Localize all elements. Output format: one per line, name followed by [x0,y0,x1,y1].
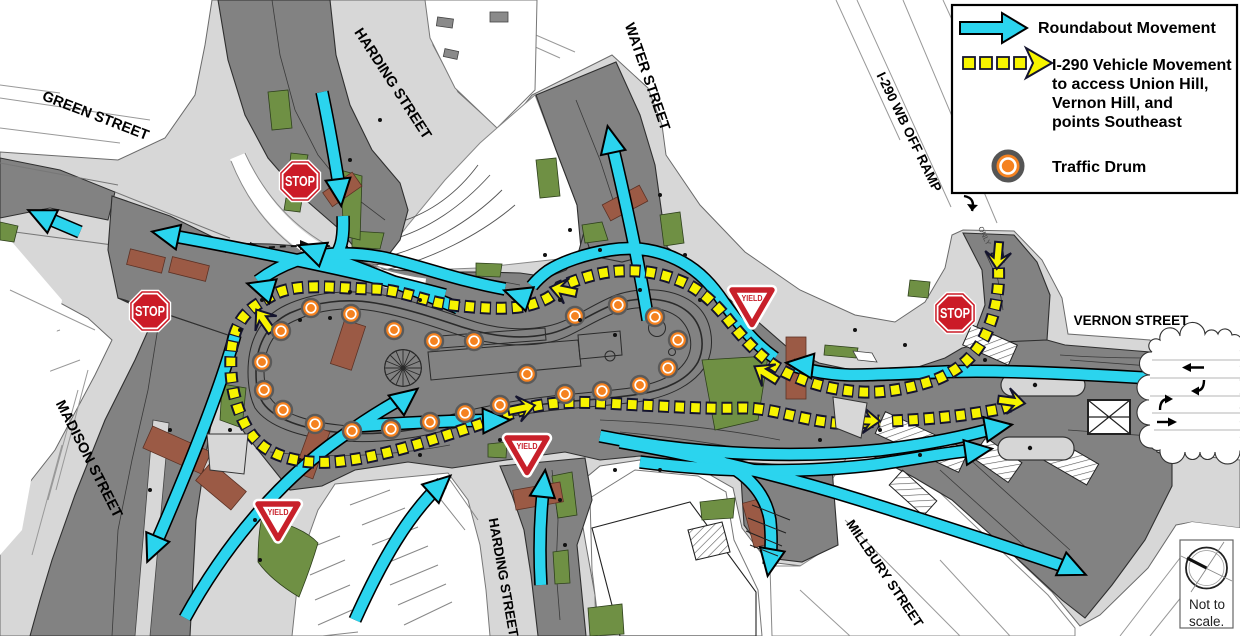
svg-text:Roundabout Movement: Roundabout Movement [1038,20,1216,37]
svg-text:VERNON STREET: VERNON STREET [1074,313,1190,328]
svg-text:Not to: Not to [1189,597,1225,612]
svg-text:scale.: scale. [1189,614,1224,629]
svg-text:to access Union Hill,: to access Union Hill, [1052,76,1208,93]
svg-text:points Southeast: points Southeast [1052,114,1182,131]
svg-text:Vernon Hill, and: Vernon Hill, and [1052,95,1173,112]
svg-text:I-290 Vehicle Movement: I-290 Vehicle Movement [1052,57,1232,74]
svg-text:Traffic Drum: Traffic Drum [1052,159,1146,176]
